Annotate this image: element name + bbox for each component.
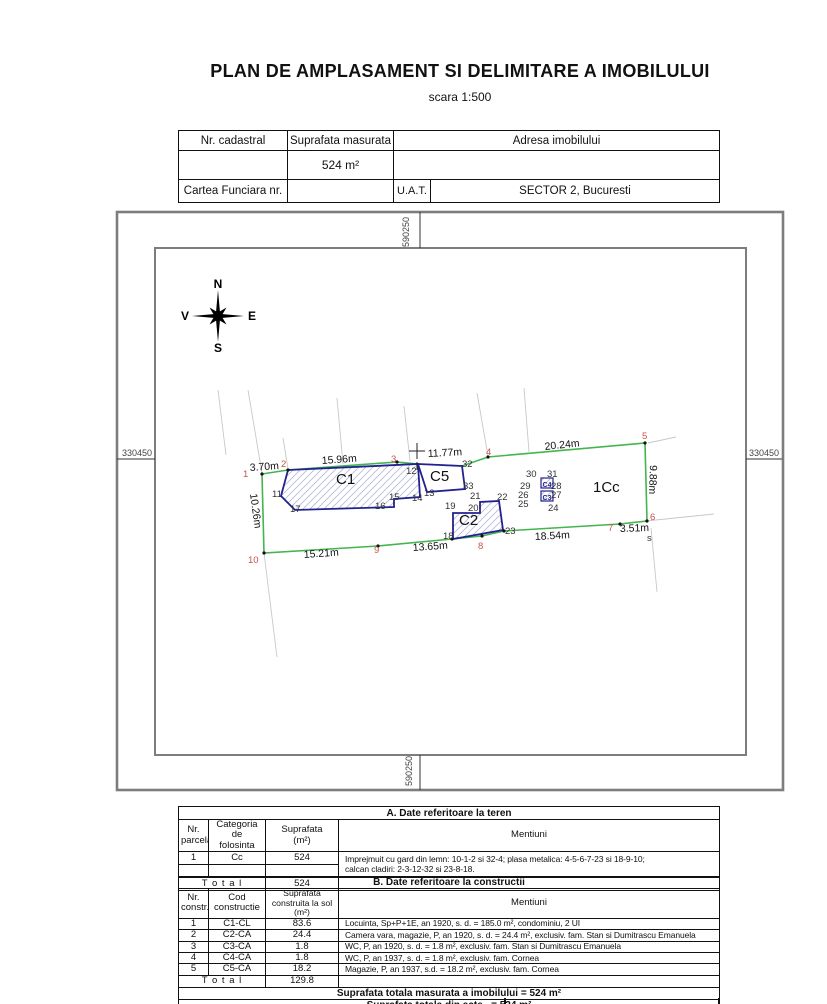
point-label: 24 bbox=[548, 503, 559, 514]
table-cell: C4-CA bbox=[209, 953, 266, 964]
table-cell: Magazie, P, an 1937, s.d. = 18.2 m², exc… bbox=[339, 964, 720, 975]
page: PLAN DE AMPLASAMENT SI DELIMITARE A IMOB… bbox=[0, 0, 827, 1004]
point-label: 22 bbox=[497, 492, 508, 503]
point-label: 9 bbox=[374, 545, 379, 556]
table-row: 5C5-CA18.2Magazie, P, an 1937, s.d. = 18… bbox=[179, 964, 720, 975]
table-a-title: A. Date referitoare la teren bbox=[179, 807, 720, 820]
dimension-label: 3.51m bbox=[620, 522, 650, 535]
point-label: 8 bbox=[478, 541, 483, 552]
building-label: C1 bbox=[336, 471, 355, 488]
table-cell: C5-CA bbox=[209, 964, 266, 975]
point-label: 33 bbox=[463, 481, 474, 492]
point-label: 14 bbox=[412, 493, 423, 504]
building-label: C3 bbox=[543, 495, 552, 502]
table-b-body: 1C1-CL83.6Locuinta, Sp+P+1E, an 1920, s.… bbox=[179, 918, 720, 975]
compass-v: V bbox=[181, 309, 189, 323]
coord-label-top: 590250 bbox=[401, 217, 411, 247]
point-label: 21 bbox=[470, 491, 481, 502]
point-label: 5 bbox=[642, 431, 647, 442]
table-cell: 5 bbox=[179, 964, 209, 975]
table-b-title: B. Date referitoare la constructii bbox=[179, 877, 720, 889]
dimension-label: 15.21m bbox=[303, 547, 339, 561]
compass-n: N bbox=[214, 277, 223, 291]
table-cell: 2 bbox=[179, 930, 209, 941]
building-label: 1Cc bbox=[593, 479, 620, 496]
table-cell: WC, P, an 1920, s. d. = 1.8 m², exclusiv… bbox=[339, 941, 720, 952]
table-cell: Locuinta, Sp+P+1E, an 1920, s. d. = 185.… bbox=[339, 918, 720, 929]
point-label: 30 bbox=[526, 469, 537, 480]
table-cell: 4 bbox=[179, 953, 209, 964]
table-cell: 524 bbox=[266, 852, 339, 865]
dimension-label: 15.96m bbox=[321, 453, 357, 467]
point-label: s bbox=[647, 533, 652, 544]
point-label: 31 bbox=[547, 469, 558, 480]
table-cell: WC, P, an 1937, s. d. = 1.8 m², exclusiv… bbox=[339, 953, 720, 964]
point-label: 2 bbox=[281, 459, 286, 470]
point-label: 13 bbox=[424, 488, 435, 499]
total-value: 129.8 bbox=[266, 975, 339, 987]
point-label: 23 bbox=[505, 526, 516, 537]
building-label: C4 bbox=[543, 482, 552, 489]
table-row: 1C1-CL83.6Locuinta, Sp+P+1E, an 1920, s.… bbox=[179, 918, 720, 929]
col-header: Categoria de folosinta bbox=[209, 820, 266, 852]
table-cell: 1 bbox=[179, 852, 209, 865]
table-constructii: B. Date referitoare la constructii Nr. c… bbox=[178, 876, 720, 1004]
dimension-label: 18.54m bbox=[535, 529, 571, 543]
table-cell: 24.4 bbox=[266, 930, 339, 941]
point-label: 19 bbox=[445, 501, 456, 512]
compass-s: S bbox=[214, 341, 222, 355]
table-cell: Camera vara, magazie, P, an 1920, s. d. … bbox=[339, 930, 720, 941]
point-label: 16 bbox=[375, 501, 386, 512]
table-cell: 83.6 bbox=[266, 918, 339, 929]
table-cell: C1-CL bbox=[209, 918, 266, 929]
table-cell: Cc bbox=[209, 852, 266, 865]
table-cell bbox=[339, 975, 720, 987]
point-label: 17 bbox=[290, 504, 301, 515]
point-label: 7 bbox=[608, 523, 613, 534]
dimension-label: 11.77m bbox=[428, 446, 463, 460]
coord-label-left: 330450 bbox=[122, 448, 152, 458]
divider bbox=[504, 998, 506, 1004]
col-header: Nr. constr. bbox=[179, 889, 209, 919]
table-cell: C3-CA bbox=[209, 941, 266, 952]
building-label: C5 bbox=[430, 468, 449, 485]
col-header: Nr. parcela bbox=[179, 820, 209, 852]
table-cell: 18.2 bbox=[266, 964, 339, 975]
point-label: 10 bbox=[248, 555, 259, 566]
table-row: 2C2-CA24.4Camera vara, magazie, P, an 19… bbox=[179, 930, 720, 941]
building-label: C2 bbox=[459, 512, 478, 529]
point-label: 1 bbox=[243, 469, 248, 480]
point-label: 4 bbox=[486, 447, 491, 458]
col-header: Suprafata (m²) bbox=[266, 820, 339, 852]
table-cell: 3 bbox=[179, 941, 209, 952]
point-label: 3 bbox=[391, 454, 396, 465]
mentiuni-cell: Imprejmuit cu gard din lemn: 10-1-2 si 3… bbox=[339, 852, 720, 878]
table-cell: 1.8 bbox=[266, 953, 339, 964]
table-row: 4C4-CA1.8WC, P, an 1937, s. d. = 1.8 m²,… bbox=[179, 953, 720, 964]
col-header: Suprafata construita la sol (m²) bbox=[266, 889, 339, 919]
coord-label-bottom: 590250 bbox=[404, 756, 414, 786]
point-label: 12 bbox=[406, 466, 417, 477]
point-label: 6 bbox=[650, 512, 655, 523]
col-header: Cod constructie bbox=[209, 889, 266, 919]
table-cell: 1 bbox=[179, 918, 209, 929]
point-label: 32 bbox=[462, 459, 473, 470]
point-label: 29 bbox=[520, 481, 531, 492]
compass-e: E bbox=[248, 309, 256, 323]
dimension-label: 3.70m bbox=[249, 460, 279, 474]
coord-label-right: 330450 bbox=[749, 448, 779, 458]
table-row: 3C3-CA1.8WC, P, an 1920, s. d. = 1.8 m²,… bbox=[179, 941, 720, 952]
col-header: Mentiuni bbox=[339, 889, 720, 919]
total-label: T o t a l bbox=[179, 975, 266, 987]
next-section-top bbox=[178, 998, 719, 1004]
point-label: 11 bbox=[272, 489, 282, 500]
point-label: 15 bbox=[389, 492, 400, 503]
dimension-label: 13.65m bbox=[412, 540, 448, 554]
point-label: 28 bbox=[551, 481, 562, 492]
col-header: Mentiuni bbox=[339, 820, 720, 852]
table-cell: C2-CA bbox=[209, 930, 266, 941]
table-cell: 1.8 bbox=[266, 941, 339, 952]
dimension-label: 9.88m bbox=[646, 465, 659, 495]
